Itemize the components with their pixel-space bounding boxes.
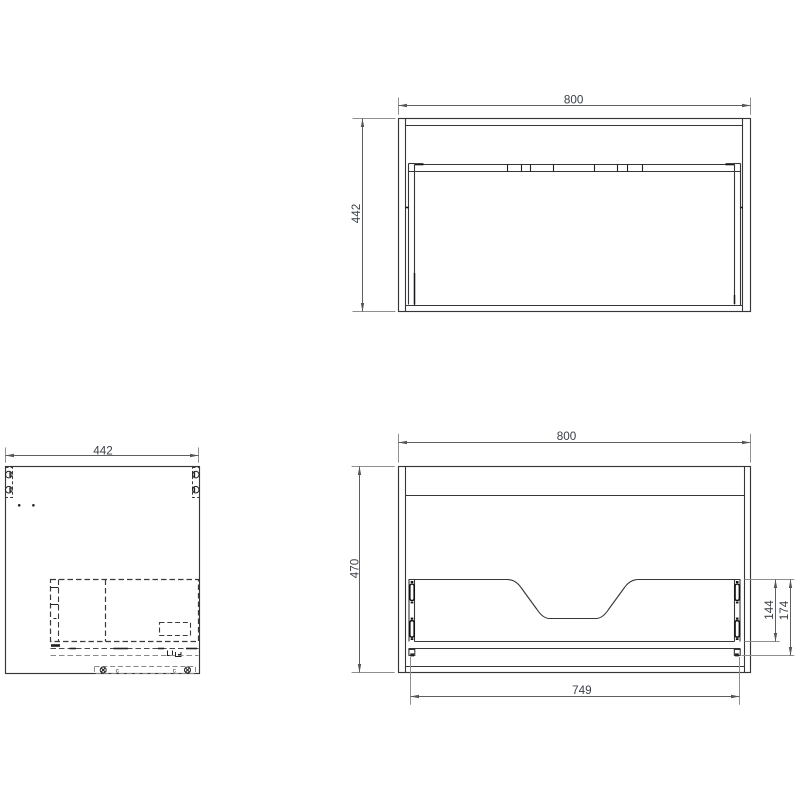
svg-text:470: 470	[348, 558, 361, 578]
svg-text:442: 442	[93, 444, 113, 457]
svg-text:144: 144	[763, 600, 776, 620]
svg-text:800: 800	[557, 430, 577, 443]
svg-text:800: 800	[564, 94, 584, 107]
svg-text:442: 442	[350, 204, 363, 224]
svg-text:174: 174	[778, 600, 791, 620]
svg-text:749: 749	[572, 684, 592, 697]
